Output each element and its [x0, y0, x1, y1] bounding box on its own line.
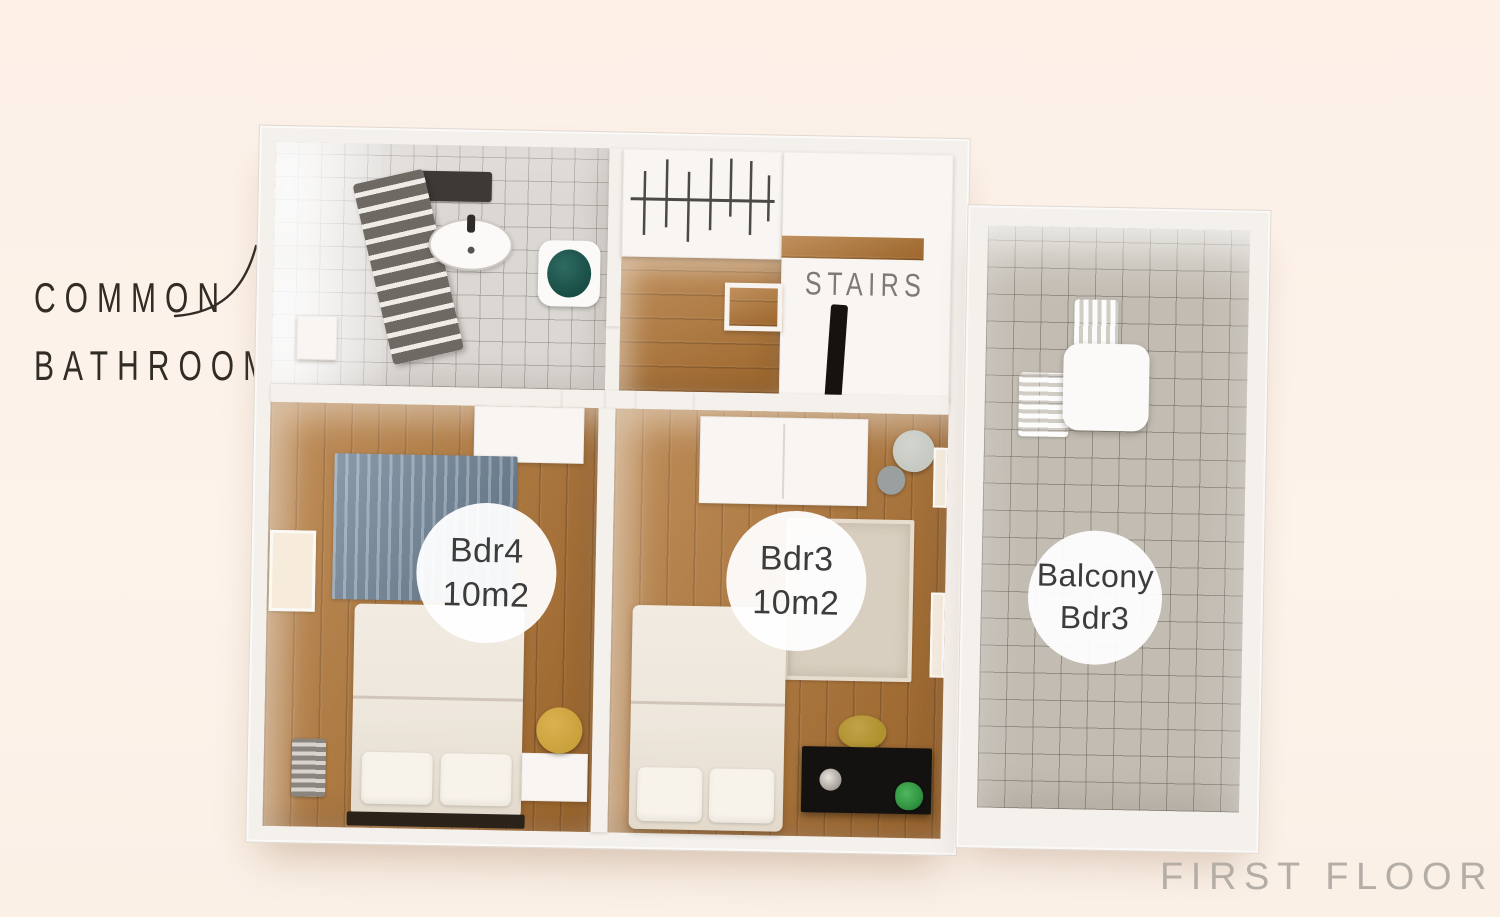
badge-bdr4-name: Bdr4 [449, 528, 524, 574]
desk-lamp-icon [819, 768, 841, 790]
badge-bdr4-area: 10m2 [442, 572, 530, 618]
bdr3-desk [801, 746, 932, 814]
balcony-floor [977, 226, 1250, 813]
plant-icon [895, 782, 924, 811]
stair-handrail [824, 304, 848, 401]
bdr3-wardrobe [699, 416, 869, 506]
bed-fold-line [631, 701, 785, 707]
bdr4-headboard [347, 811, 525, 828]
bed-fold-line [353, 695, 523, 701]
bdr4-window [269, 530, 317, 612]
floor-plan-scene: COMMON BATHROOM [0, 0, 1500, 917]
toilet-lid [547, 249, 592, 298]
stair-landing [621, 149, 783, 260]
stairs-label: STAIRS [805, 266, 927, 306]
badge-bdr3-area: 10m2 [752, 580, 840, 626]
balcony [955, 204, 1271, 854]
bathroom-cabinet [296, 315, 337, 360]
house: STAIRS [245, 125, 971, 857]
pillow [709, 768, 775, 823]
bdr4-stool [536, 707, 583, 754]
balcony-chair-left [1018, 372, 1069, 437]
stair-railing-icon [621, 149, 783, 260]
pillow [440, 753, 512, 806]
badge-bdr3-name: Bdr3 [759, 536, 834, 582]
bdr3-desk-chair [838, 715, 887, 750]
toilet [538, 240, 601, 307]
bdr4-nightstand [521, 753, 588, 802]
bdr3-window-lower [929, 593, 945, 678]
loft-hatch [724, 283, 783, 332]
bdr3-window-upper [933, 448, 948, 508]
pillow [637, 767, 703, 822]
pillow [361, 752, 433, 805]
bathroom [271, 142, 610, 390]
wardrobe-seam [782, 424, 785, 499]
balcony-chair-top [1074, 299, 1119, 347]
floor-plan: STAIRS [223, 118, 1273, 866]
annotation-line-1: COMMON [34, 276, 228, 323]
bdr4-radiator [291, 738, 326, 797]
balcony-table [1062, 343, 1150, 432]
stairwell: STAIRS [779, 152, 954, 403]
badge-balcony-room: Bdr3 [1059, 597, 1129, 640]
bathroom-mirror [420, 171, 493, 202]
stair-edge [782, 236, 924, 261]
bdr3-gray-stool [877, 465, 906, 495]
sink-faucet-icon [467, 215, 475, 233]
floor-title: FIRST FLOOR [1160, 856, 1494, 899]
bdr3-side-table [892, 430, 935, 473]
sink-drain-icon [468, 247, 475, 254]
badge-balcony-name: Balcony [1036, 555, 1154, 599]
wall-hall-middle [606, 390, 635, 409]
bedroom-4 [263, 402, 599, 832]
